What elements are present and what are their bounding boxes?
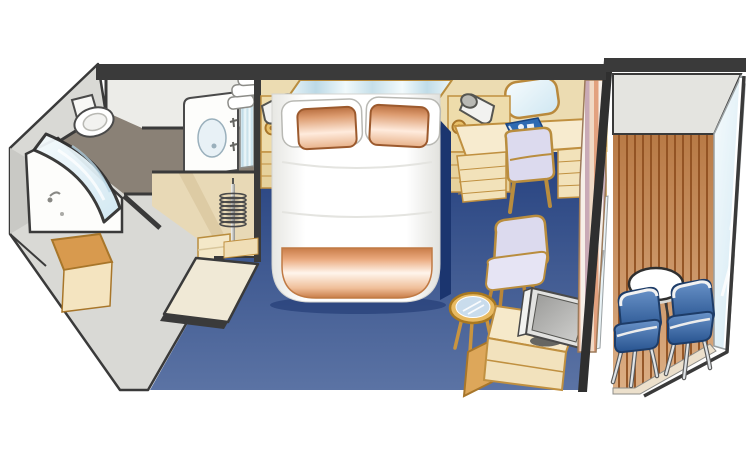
peach-foot-blanket — [282, 248, 432, 298]
peach-pillow-left — [297, 107, 357, 150]
desk-mirror — [504, 77, 561, 120]
sink-basin — [198, 119, 226, 157]
queen-bed — [270, 94, 451, 314]
hangers-coil — [220, 193, 246, 226]
stateroom-floorplan — [0, 0, 750, 460]
door-threshold — [224, 238, 258, 258]
floorplan-svg — [0, 0, 750, 460]
peach-pillow-right — [369, 105, 429, 148]
balcony — [613, 74, 745, 396]
divider-wall — [254, 78, 261, 262]
